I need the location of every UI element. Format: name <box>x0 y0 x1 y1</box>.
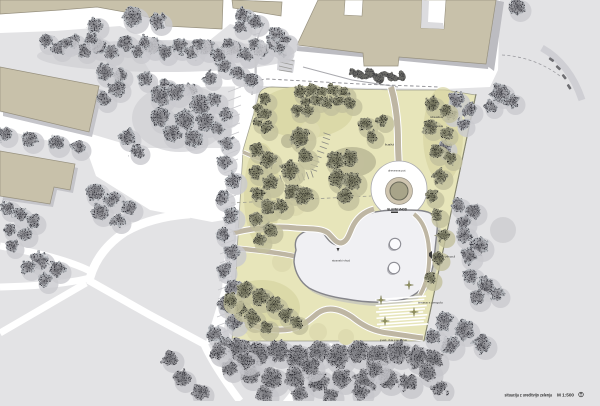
svg-text:pot za pešce: pot za pešce <box>380 338 408 342</box>
svg-text:drevesna pot: drevesna pot <box>388 169 406 173</box>
svg-text:situacija z ureditvijo zelenja: situacija z ureditvijo zelenja <box>505 393 553 398</box>
svg-text:vrtni vhod: vrtni vhod <box>434 255 456 259</box>
svg-text:M 1:500: M 1:500 <box>557 393 575 398</box>
svg-text:stranski vhod: stranski vhod <box>332 259 350 263</box>
svg-text:visoka: visoka <box>430 115 443 119</box>
svg-text:terasa s pergolo: terasa s pergolo <box>418 301 443 305</box>
svg-text:GLAVNI VHOD: GLAVNI VHOD <box>387 208 407 212</box>
svg-text:drevesa: drevesa <box>428 124 443 128</box>
svg-text:kaki: kaki <box>385 143 395 147</box>
